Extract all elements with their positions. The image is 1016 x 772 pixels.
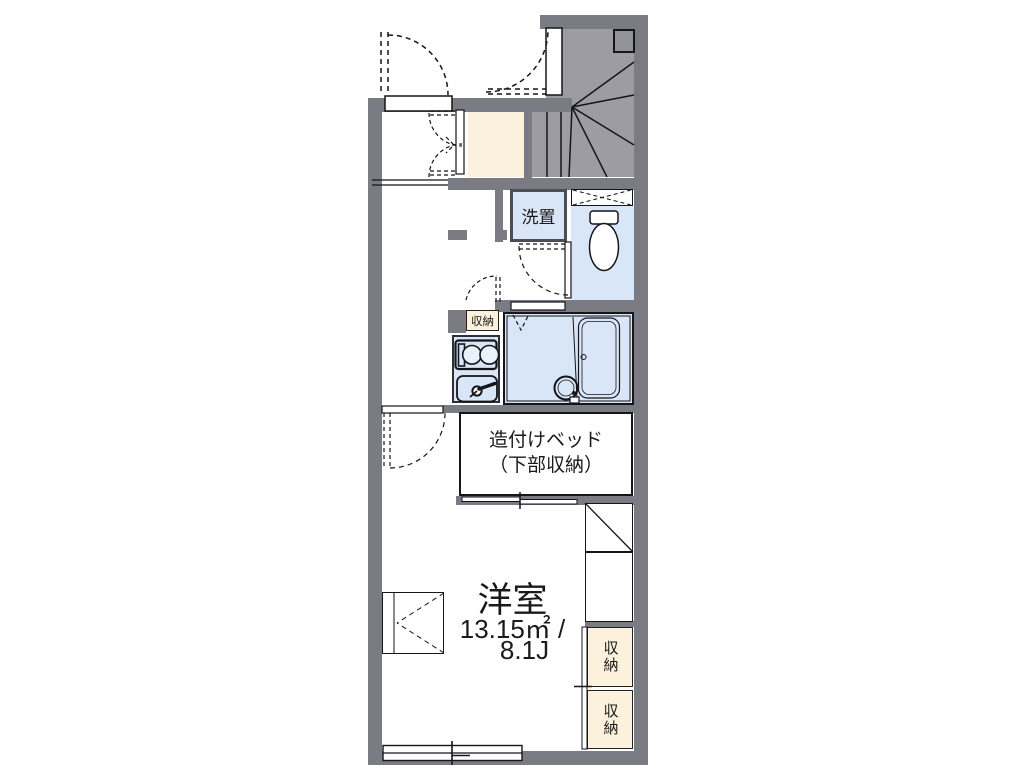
washer-label: 洗置 <box>522 203 556 228</box>
genkan-step-line <box>372 180 448 185</box>
toilet-room <box>571 206 634 300</box>
wall-bath-top <box>495 300 634 312</box>
washing-machine-space: 洗置 <box>510 189 567 242</box>
wall-right <box>634 15 648 765</box>
apartment-floorplan: 洗置 収納 造付けベッド （下部収納） 収納 収納 洋室 13.15㎡ / 8.… <box>0 0 1016 772</box>
staircase-area-lower <box>531 112 546 177</box>
genkan-closet-doors <box>429 110 464 177</box>
room-area-jo-label: 8.1J <box>432 635 617 666</box>
wall-left <box>368 98 382 765</box>
wall-stair-top <box>540 15 648 29</box>
entry-genkan-area <box>468 112 524 177</box>
toilet-window-box <box>571 189 633 206</box>
built-in-bed: 造付けベッド （下部収納） <box>459 412 633 496</box>
wall-top-band <box>368 98 572 112</box>
wall-stub-b <box>495 230 507 240</box>
kitchen-unit <box>452 335 500 403</box>
wall-storage-stub <box>448 310 466 333</box>
kitchen-storage-box: 収納 <box>466 310 499 331</box>
room-door <box>382 406 445 468</box>
toilet-door <box>519 242 571 298</box>
kitchen-storage-label: 収納 <box>471 313 494 329</box>
bathroom-unit <box>503 312 634 405</box>
right-storage-lower-label: 収納 <box>600 703 621 737</box>
right-storage-lower: 収納 <box>587 690 633 749</box>
bed-label-line1: 造付けベッド <box>489 429 603 454</box>
bed-label-line2: （下部収納） <box>489 454 603 479</box>
wall-stub-a <box>448 230 467 240</box>
wall-genkan-stair-divider <box>524 112 532 178</box>
wall-bottom <box>368 751 648 765</box>
shelf-space-upper <box>585 503 633 552</box>
